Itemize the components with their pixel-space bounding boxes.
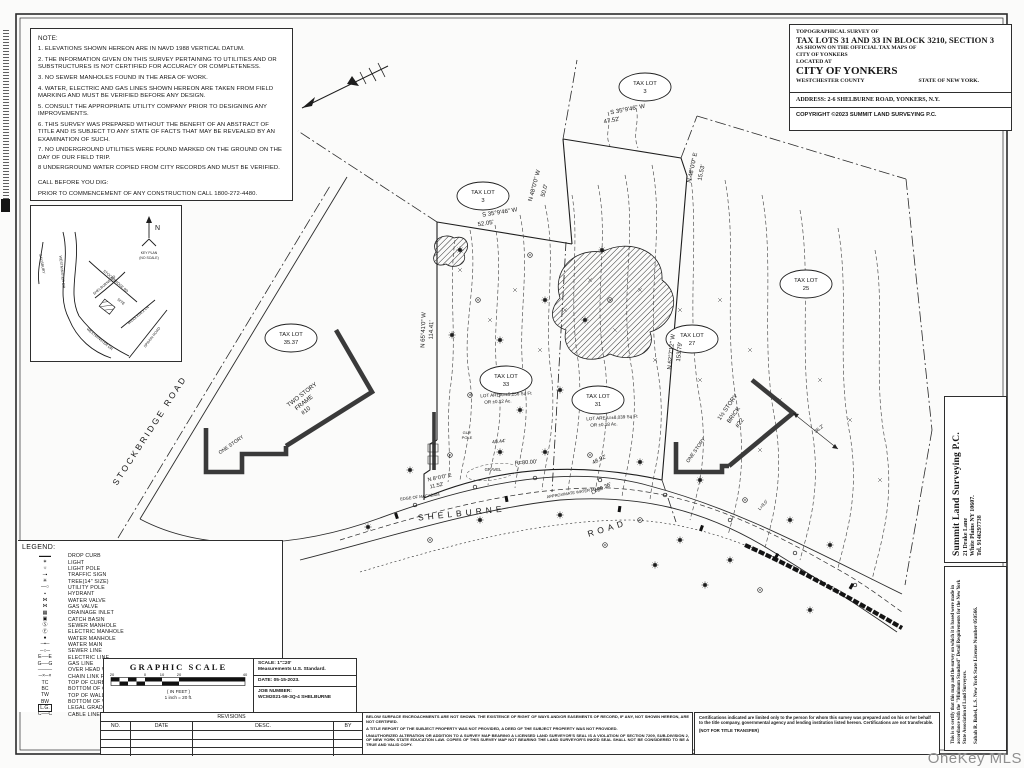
notes-list: 1. ELEVATIONS SHOWN HEREON ARE IN NAVD 1…: [38, 46, 285, 173]
tax-lot-31: TAX LOT 31: [572, 386, 624, 414]
svg-text:50.0': 50.0': [540, 184, 549, 198]
legend-label: SEWER LINE: [68, 648, 278, 654]
tax-lot-33: TAX LOT 33: [480, 366, 532, 394]
svg-text:SITE: SITE: [116, 298, 125, 307]
legend-symbol-icon: [22, 573, 68, 578]
legend-symbol-icon: [22, 566, 68, 571]
company-name: Summit Land Surveying P.C.: [952, 406, 962, 556]
svg-text:10: 10: [159, 672, 164, 677]
onekey-mls-watermark: OneKey MLS: [928, 750, 1022, 767]
legend-symbol-icon: [22, 674, 68, 679]
revisions-empty-row: [101, 740, 362, 749]
scale-bar: 20 0 10 20 40: [109, 672, 249, 688]
legend-row: WATER VALVE: [22, 597, 278, 603]
tax-lot-25: TAX LOT 25: [780, 270, 832, 298]
company-phone: Tel. 9146297738: [977, 406, 983, 556]
surveyor-license: Sabah R. Babel, L.S. New York State Lice…: [973, 572, 980, 744]
legend-label: TRAFFIC SIGN: [68, 572, 278, 578]
svg-text:40: 40: [242, 672, 247, 677]
legend-label: DROP CURB: [68, 553, 278, 559]
svg-text:TAX LOT: TAX LOT: [494, 374, 518, 380]
svg-text:SHELBURNE: SHELBURNE: [417, 503, 506, 522]
legend-symbol-icon: [22, 579, 68, 584]
company-address-2: White Plains NY 10607.: [970, 406, 976, 556]
legend-row: DROP CURB: [22, 553, 278, 559]
legend-label: LIGHT: [68, 560, 278, 566]
legend-row: SEWER LINE: [22, 648, 278, 654]
job-number-label: JOB NUMBER:: [258, 689, 292, 694]
legend-label: LIGHT POLE: [68, 566, 278, 572]
svg-text:40.44': 40.44': [492, 438, 506, 445]
legend-label: DRAINAGE INLET: [68, 610, 278, 616]
certification-text: Certifications indicated are limited onl…: [699, 715, 935, 726]
legend-symbol-icon: [22, 560, 68, 565]
disclaimer-alteration: UNAUTHORIZED ALTERATION OR ADDITION TO A…: [366, 734, 689, 748]
legend-label: SEWER MANHOLE: [68, 623, 278, 629]
note-item: 8 UNDERGROUND WATER COPIED FROM CITY REC…: [38, 165, 285, 172]
svg-text:LOT AREA=±8,039 Sq Ft: LOT AREA=±8,039 Sq Ft: [586, 414, 638, 422]
svg-text:SHELBURNE RD: SHELBURNE RD: [92, 274, 116, 295]
rock-outcrop: [434, 236, 674, 359]
title-line-2: TAX LOTS 31 AND 33 IN BLOCK 3210, SECTIO…: [796, 36, 1005, 45]
legend-row: GAS VALVE: [22, 604, 278, 610]
utility-symbols: [394, 476, 857, 589]
legend-symbol-icon: [22, 598, 68, 603]
svg-text:MIDDLESEX LN: MIDDLESEX LN: [127, 305, 150, 325]
svg-text:WESTMINSTER DR: WESTMINSTER DR: [58, 255, 65, 288]
graphic-scale-panel: GRAPHIC SCALE 20 0 10 20 40 ( IN FEET ) …: [103, 658, 254, 713]
not-for-title-transfer: (NOT FOR TITLE TRANSFER): [699, 728, 935, 733]
svg-text:N: N: [155, 225, 160, 232]
tax-lot-labels: TAX LOT 3 TAX LOT 3 TAX LOT 25 TAX LOT 2…: [265, 73, 832, 414]
legend-symbol-icon: [22, 592, 68, 597]
legend-symbol-icon: [22, 712, 68, 717]
legend-symbol-icon: [22, 636, 68, 641]
road-name-labels: STOCKBRIDGE ROAD SHELBURNE ROAD: [110, 374, 628, 539]
revisions-column-header: DESC.: [193, 722, 334, 730]
title-line-4: CITY OF YONKERS: [796, 52, 1005, 59]
legend-label: ELECTRIC MANHOLE: [68, 629, 278, 635]
scale-ratio: 1 inch = 20 ft.: [165, 695, 193, 700]
svg-text:WESTMINSTER DR: WESTMINSTER DR: [86, 327, 114, 351]
title-line-3: AS SHOWN ON THE OFFICIAL TAX MAPS OF: [796, 45, 1005, 52]
svg-text:R=80.00': R=80.00': [515, 459, 538, 467]
site-walls: [428, 412, 519, 484]
svg-text:27: 27: [689, 341, 695, 347]
note-item: 5. CONSULT THE APPROPRIATE UTILITY COMPA…: [38, 104, 285, 119]
north-arrow: [302, 63, 388, 108]
svg-text:3: 3: [643, 89, 646, 95]
note-item: 7. NO UNDERGROUND UTILITIES WERE FOUND M…: [38, 147, 285, 162]
margin-ink-blob: [1, 199, 10, 212]
svg-text:KEY PLAN: KEY PLAN: [141, 251, 158, 255]
svg-text:25: 25: [803, 286, 809, 292]
title-line-6: CITY OF YONKERS: [796, 66, 1005, 78]
legend-symbol-icon: [22, 649, 68, 654]
legend-row: TRAFFIC SIGN: [22, 572, 278, 578]
svg-text:STOCKBRIDGE ROAD: STOCKBRIDGE ROAD: [110, 374, 188, 487]
disclaimer-panel: BELOW SURFACE ENCROACHMENTS ARE NOT SHOW…: [362, 712, 693, 755]
svg-text:48.92': 48.92': [591, 454, 607, 466]
curve-labels: R=80.00' 48.92' L=89.36' L=8.0' 40.44' 3…: [492, 423, 826, 511]
svg-text:36.2': 36.2': [813, 423, 825, 434]
certify-statement: This is to certify that this map and the…: [951, 572, 969, 744]
legend-row: ELECTRIC MANHOLE: [22, 629, 278, 635]
key-plan-north-arrow: N: [142, 216, 160, 246]
legend-label: GAS VALVE: [68, 604, 278, 610]
scale-standard: Measurements U.S. Standard.: [258, 667, 326, 672]
key-plan-map: SITE N SALISBURY WESTMINSTER DR STOCKBRI…: [31, 206, 181, 361]
svg-text:35.37: 35.37: [284, 340, 299, 346]
svg-text:OR ±0.18 Ac.: OR ±0.18 Ac.: [590, 421, 618, 427]
svg-text:33: 33: [503, 382, 509, 388]
key-plan-site-marker: SITE: [99, 298, 126, 315]
title-address: ADDRESS: 2-6 SHELBURNE ROAD, YONKERS, N.…: [790, 92, 1011, 107]
certification-panel: Certifications indicated are limited onl…: [694, 712, 940, 755]
legend-label: TREE(14" SIZE): [68, 579, 278, 585]
margin-filmstrip: [3, 30, 9, 202]
revisions-column-header: NO.: [101, 722, 131, 730]
svg-text:ONE STORY: ONE STORY: [685, 436, 707, 464]
notes-title: NOTE:: [38, 35, 285, 43]
svg-text:52.05': 52.05': [477, 220, 494, 228]
svg-text:L=8.0': L=8.0': [757, 499, 769, 512]
legend-row: WATER MANHOLE: [22, 635, 278, 641]
revisions-table: REVISIONS NO.DATEDESC.BY: [100, 712, 363, 755]
svg-text:11.52': 11.52': [429, 482, 444, 491]
call-before-dig-text: PRIOR TO COMMENCEMENT OF ANY CONSTRUCTIO…: [38, 191, 285, 198]
legend-symbol-icon: [22, 706, 68, 711]
company-info: Summit Land Surveying P.C. 21 Drake Lane…: [952, 406, 983, 556]
tax-lot-3: TAX LOT 3: [457, 182, 509, 210]
title-copyright: COPYRIGHT ©2023 SUMMIT LAND SURVEYING P.…: [790, 107, 1011, 122]
legend-symbol-icon: [22, 630, 68, 635]
svg-text:31: 31: [595, 402, 601, 408]
legend-row: CATCH BASIN: [22, 616, 278, 622]
legend-symbol-icon: [22, 642, 68, 647]
tax-lot-3-north: TAX LOT 3: [619, 73, 671, 101]
legend-symbol-icon: [22, 585, 68, 590]
legend-symbol-icon: [22, 655, 68, 660]
legend-row: DRAINAGE INLET: [22, 610, 278, 616]
legend-row: LIGHT: [22, 559, 278, 565]
legend-symbol-icon: [22, 554, 68, 559]
graphic-scale-title: GRAPHIC SCALE: [108, 662, 249, 672]
legend-symbol-icon: [22, 668, 68, 673]
job-number-value: WCM2021-59-3Q-4 SHELBURNE: [258, 695, 331, 700]
scale-value: SCALE: 1"=20': [258, 661, 291, 666]
legend-row: TREE(14" SIZE): [22, 578, 278, 584]
svg-text:TAX LOT: TAX LOT: [794, 278, 818, 284]
legend-row: SEWER MANHOLE: [22, 623, 278, 629]
title-block: TOPOGRAPHICAL SURVEY OF TAX LOTS 31 AND …: [789, 24, 1012, 131]
svg-text:20: 20: [109, 672, 114, 677]
legend-symbol-icon: [22, 693, 68, 698]
svg-text:OR ±0.12 Ac.: OR ±0.12 Ac.: [484, 398, 512, 404]
disclaimer-title-report: A TITLE REPORT OF THE SUBJECT PROPERTY W…: [366, 727, 689, 732]
legend-label: WATER MAIN: [68, 642, 278, 648]
svg-text:POLE: POLE: [462, 435, 473, 440]
legend-symbol-icon: [22, 623, 68, 628]
svg-text:TAX LOT: TAX LOT: [586, 394, 610, 400]
title-state: STATE OF NEW YORK.: [918, 78, 979, 84]
svg-text:20: 20: [176, 672, 181, 677]
svg-text:(NO SCALE): (NO SCALE): [139, 256, 158, 260]
svg-text:GRAVEL: GRAVEL: [485, 467, 502, 472]
legend-row: WATER MAIN: [22, 642, 278, 648]
note-item: 1. ELEVATIONS SHOWN HEREON ARE IN NAVD 1…: [38, 46, 285, 53]
svg-text:153.79': 153.79': [676, 342, 684, 362]
legend-title: LEGEND:: [22, 544, 278, 551]
legend-row: HYDRANT: [22, 591, 278, 597]
survey-date: DATE: 05-15-2023.: [254, 676, 356, 687]
revisions-title: REVISIONS: [101, 713, 362, 722]
legend-symbol-icon: [22, 611, 68, 616]
legend-symbol-icon: [22, 604, 68, 609]
svg-text:0: 0: [143, 672, 146, 677]
revisions-column-header: DATE: [131, 722, 193, 730]
surveyor-certification: This is to certify that this map and the…: [951, 572, 980, 744]
legend-label: HYDRANT: [68, 591, 278, 597]
note-item: 6. THIS SURVEY WAS PREPARED WITHOUT THE …: [38, 122, 285, 144]
key-plan-road-labels: SALISBURY WESTMINSTER DR STOCKBRIDGE RD …: [38, 251, 161, 352]
note-item: 4. WATER, ELECTRIC AND GAS LINES SHOWN H…: [38, 86, 285, 101]
svg-text:3: 3: [481, 198, 484, 204]
survey-sheet: TAX LOT 3 TAX LOT 3 TAX LOT 25 TAX LOT 2…: [0, 0, 1024, 768]
title-county: WESTCHESTER COUNTY: [796, 78, 865, 84]
svg-text:TAX LOT: TAX LOT: [279, 332, 303, 338]
legend-symbol-icon: [22, 681, 68, 686]
svg-text:TAX LOT: TAX LOT: [633, 81, 657, 87]
disclaimer-encroachments: BELOW SURFACE ENCROACHMENTS ARE NOT SHOW…: [366, 715, 689, 724]
legend-label: CATCH BASIN: [68, 617, 278, 623]
call-before-dig-title: CALL BEFORE YOU DIG:: [38, 180, 285, 187]
note-item: 3. NO SEWER MANHOLES FOUND IN THE AREA O…: [38, 75, 285, 82]
revisions-header: NO.DATEDESC.BY: [101, 722, 362, 731]
legend-symbol-icon: [22, 687, 68, 692]
svg-text:N 48°0'0" W: N 48°0'0" W: [528, 169, 542, 202]
legend-label: WATER VALVE: [68, 598, 278, 604]
legend-symbol-icon: [22, 662, 68, 667]
svg-text:LOT AREA=±5,256 Sq Ft: LOT AREA=±5,256 Sq Ft: [480, 391, 532, 399]
legend-label: UTILITY POLE: [68, 585, 278, 591]
legend-row: LIGHT POLE: [22, 566, 278, 572]
svg-text:15.53': 15.53': [697, 164, 706, 181]
company-address-1: 21 Drake Lane: [963, 406, 969, 556]
notes-panel: NOTE: 1. ELEVATIONS SHOWN HEREON ARE IN …: [30, 28, 293, 201]
svg-text:TAX LOT: TAX LOT: [680, 333, 704, 339]
revisions-column-header: BY: [334, 722, 362, 730]
key-plan-panel: SITE N SALISBURY WESTMINSTER DR STOCKBRI…: [30, 205, 182, 362]
svg-text:S 35°9'46" W: S 35°9'46" W: [610, 104, 646, 117]
legend-label: WATER MANHOLE: [68, 636, 278, 642]
revisions-empty-row: [101, 731, 362, 740]
note-item: 2. THE INFORMATION GIVEN ON THIS SURVEY …: [38, 57, 285, 72]
revisions-empty-row: [101, 748, 362, 756]
scale-in-feet: ( IN FEET ): [167, 689, 190, 694]
svg-text:#22: #22: [735, 417, 746, 429]
svg-text:114.41': 114.41': [429, 320, 436, 339]
tax-lot-35-37: TAX LOT 35.37: [265, 324, 317, 352]
legend-row: UTILITY POLE: [22, 585, 278, 591]
scale-info-panel: SCALE: 1"=20' Measurements U.S. Standard…: [253, 658, 357, 713]
svg-text:47.52': 47.52': [603, 117, 620, 126]
svg-text:TAX LOT: TAX LOT: [471, 190, 495, 196]
svg-text:N 65°41'0" W: N 65°41'0" W: [420, 312, 427, 348]
